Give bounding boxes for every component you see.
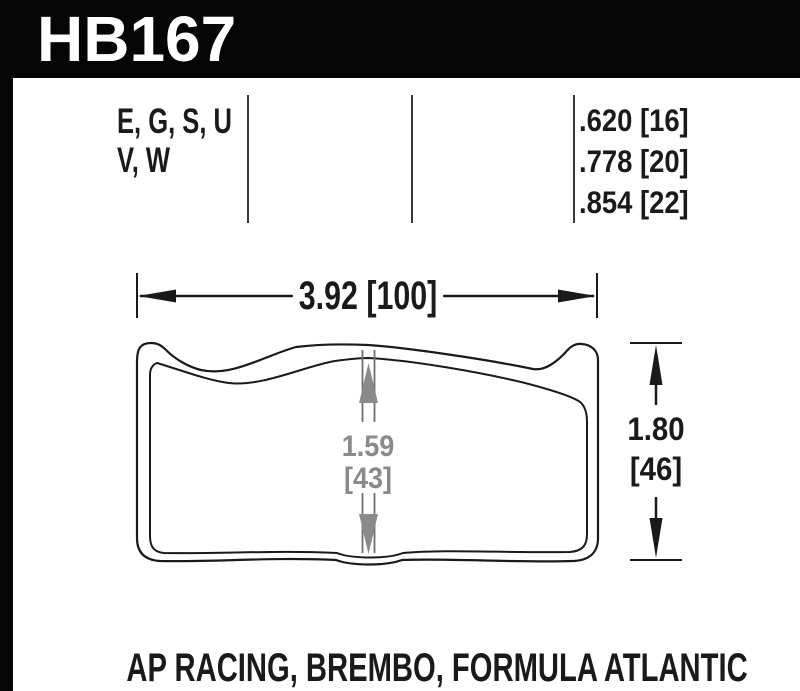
thickness-value: .854 [22] xyxy=(579,182,689,223)
compound-codes-line2: V, W xyxy=(117,141,232,180)
width-dimension-label: 3.92 [100] xyxy=(292,273,444,319)
thickness-value: .620 [16] xyxy=(579,100,689,141)
center-dimension-label: 1.59 [43] xyxy=(319,431,416,495)
height-dimension-inches: 1.80 xyxy=(610,409,702,449)
height-dim-arrow-up-icon xyxy=(650,345,663,385)
applications-label: AP RACING, BREMBO, FORMULA ATLANTIC xyxy=(126,648,701,688)
table-divider-2 xyxy=(411,95,413,223)
height-dimension-mm: [46] xyxy=(610,449,702,489)
thickness-value: .778 [20] xyxy=(579,141,689,182)
width-dim-arrow-left-icon xyxy=(138,290,176,303)
table-divider-3 xyxy=(573,95,575,223)
width-dim-arrow-right-icon xyxy=(558,290,596,303)
height-dim-arrow-down-icon xyxy=(650,518,663,558)
compound-codes: E, G, S, U V, W xyxy=(117,102,232,180)
compound-codes-line1: E, G, S, U xyxy=(117,102,232,141)
height-dimension-label: 1.80 [46] xyxy=(610,409,702,489)
part-number: HB167 xyxy=(37,7,236,71)
center-dimension-inches: 1.59 xyxy=(319,431,416,463)
table-divider-1 xyxy=(247,95,249,223)
catalog-sheet: HB167 E, G, S, U V, W .620 [16] .778 [20… xyxy=(0,0,800,691)
thickness-list: .620 [16] .778 [20] .854 [22] xyxy=(579,100,689,223)
center-dimension-mm: [43] xyxy=(319,463,416,495)
header-band: HB167 xyxy=(0,0,800,78)
